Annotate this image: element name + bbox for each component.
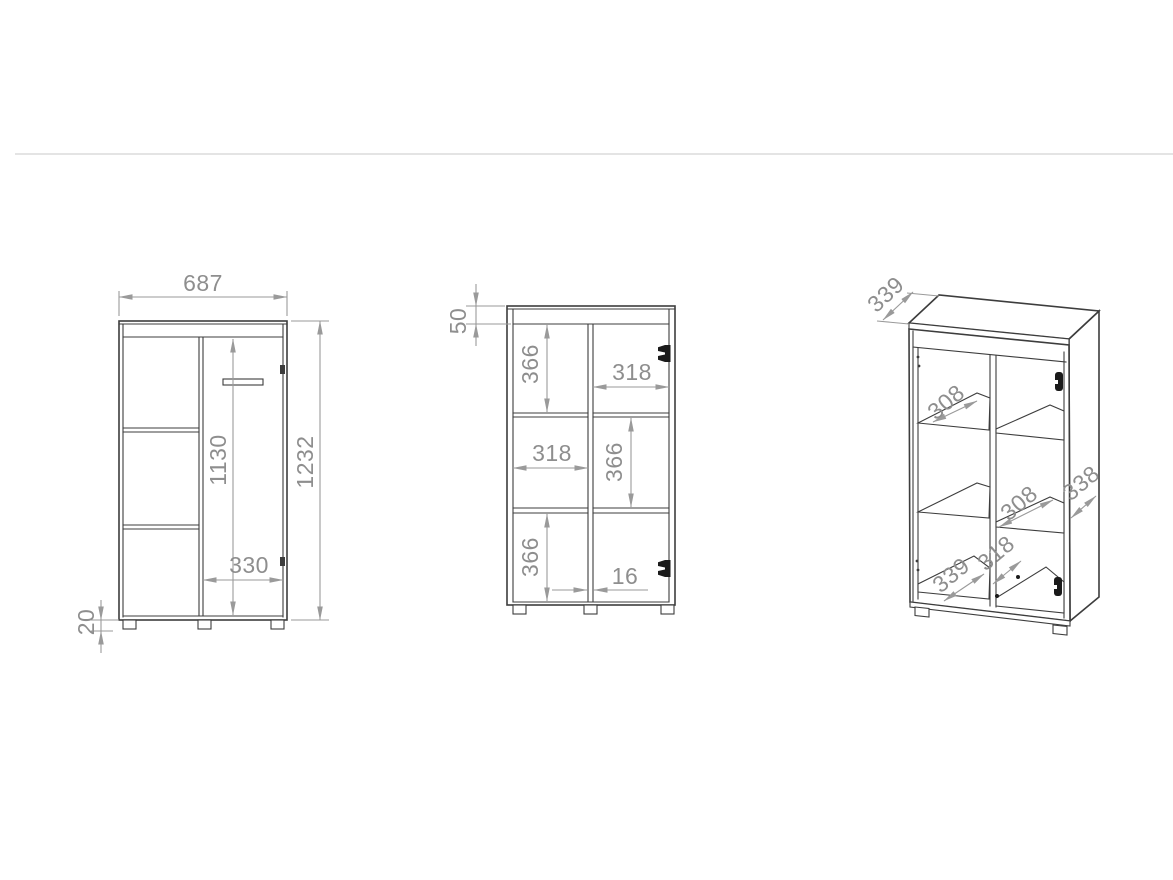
dim-label-cell: 366	[601, 442, 627, 482]
dim-label-cell: 366	[517, 344, 543, 384]
dim-label-width: 687	[183, 270, 223, 296]
pin-hole	[917, 569, 920, 572]
foot	[271, 620, 284, 629]
hinge-top	[1055, 372, 1063, 391]
dim-label-top-panel: 50	[445, 308, 471, 335]
dim-label-cell: 318	[532, 440, 572, 466]
dim-label-top-depth: 339	[862, 271, 909, 317]
door-handle	[223, 379, 263, 385]
dim-label-cell: 366	[517, 537, 543, 577]
dimension-width-687: 687	[119, 270, 287, 316]
foot	[123, 620, 136, 629]
dimension-top-panel-50: 50	[445, 284, 511, 346]
isometric-view: 339 308 308 338 318 339	[862, 271, 1104, 635]
hinge-mark-top	[280, 365, 285, 374]
foot	[1053, 625, 1067, 635]
front-view: 687 1232 1130 330 20	[73, 270, 329, 653]
dim-label-door-height: 1130	[205, 434, 231, 485]
dim-label-divider: 16	[612, 563, 639, 589]
pin-hole	[1016, 575, 1020, 579]
foot	[661, 605, 674, 614]
pin-hole	[995, 594, 999, 598]
dimension-feet-20: 20	[73, 600, 119, 653]
foot	[915, 607, 929, 617]
technical-drawing-page: 687 1232 1130 330 20	[0, 0, 1173, 880]
dim-label-door-width: 330	[229, 552, 269, 578]
dim-label-feet: 20	[73, 609, 99, 636]
pin-hole	[917, 356, 920, 359]
drawing-svg: 687 1232 1130 330 20	[0, 0, 1173, 880]
pin-hole	[916, 560, 919, 563]
open-front-view: 50 366 318 318 366 366 16	[445, 284, 675, 614]
dimension-height-1232: 1232	[291, 321, 329, 620]
hinge-bottom	[1054, 577, 1062, 596]
pin-hole	[918, 365, 921, 368]
dim-label-cell: 318	[612, 359, 652, 385]
foot	[513, 605, 526, 614]
hinge-mark-bottom	[280, 557, 285, 566]
foot	[584, 605, 597, 614]
foot	[198, 620, 211, 629]
dim-label-height: 1232	[292, 435, 318, 488]
